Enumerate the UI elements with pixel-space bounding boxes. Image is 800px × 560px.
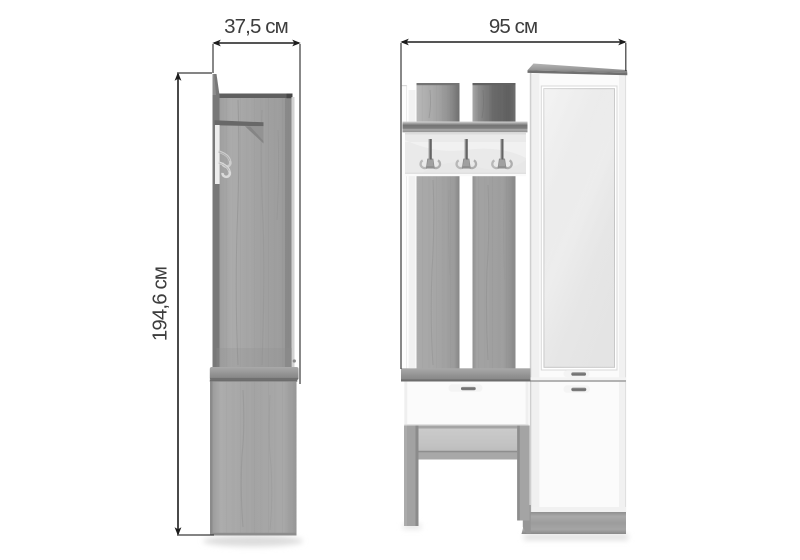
svg-text:194,6 см: 194,6 см <box>148 267 171 341</box>
svg-text:37,5 см: 37,5 см <box>224 15 288 38</box>
svg-text:95 см: 95 см <box>489 15 537 38</box>
